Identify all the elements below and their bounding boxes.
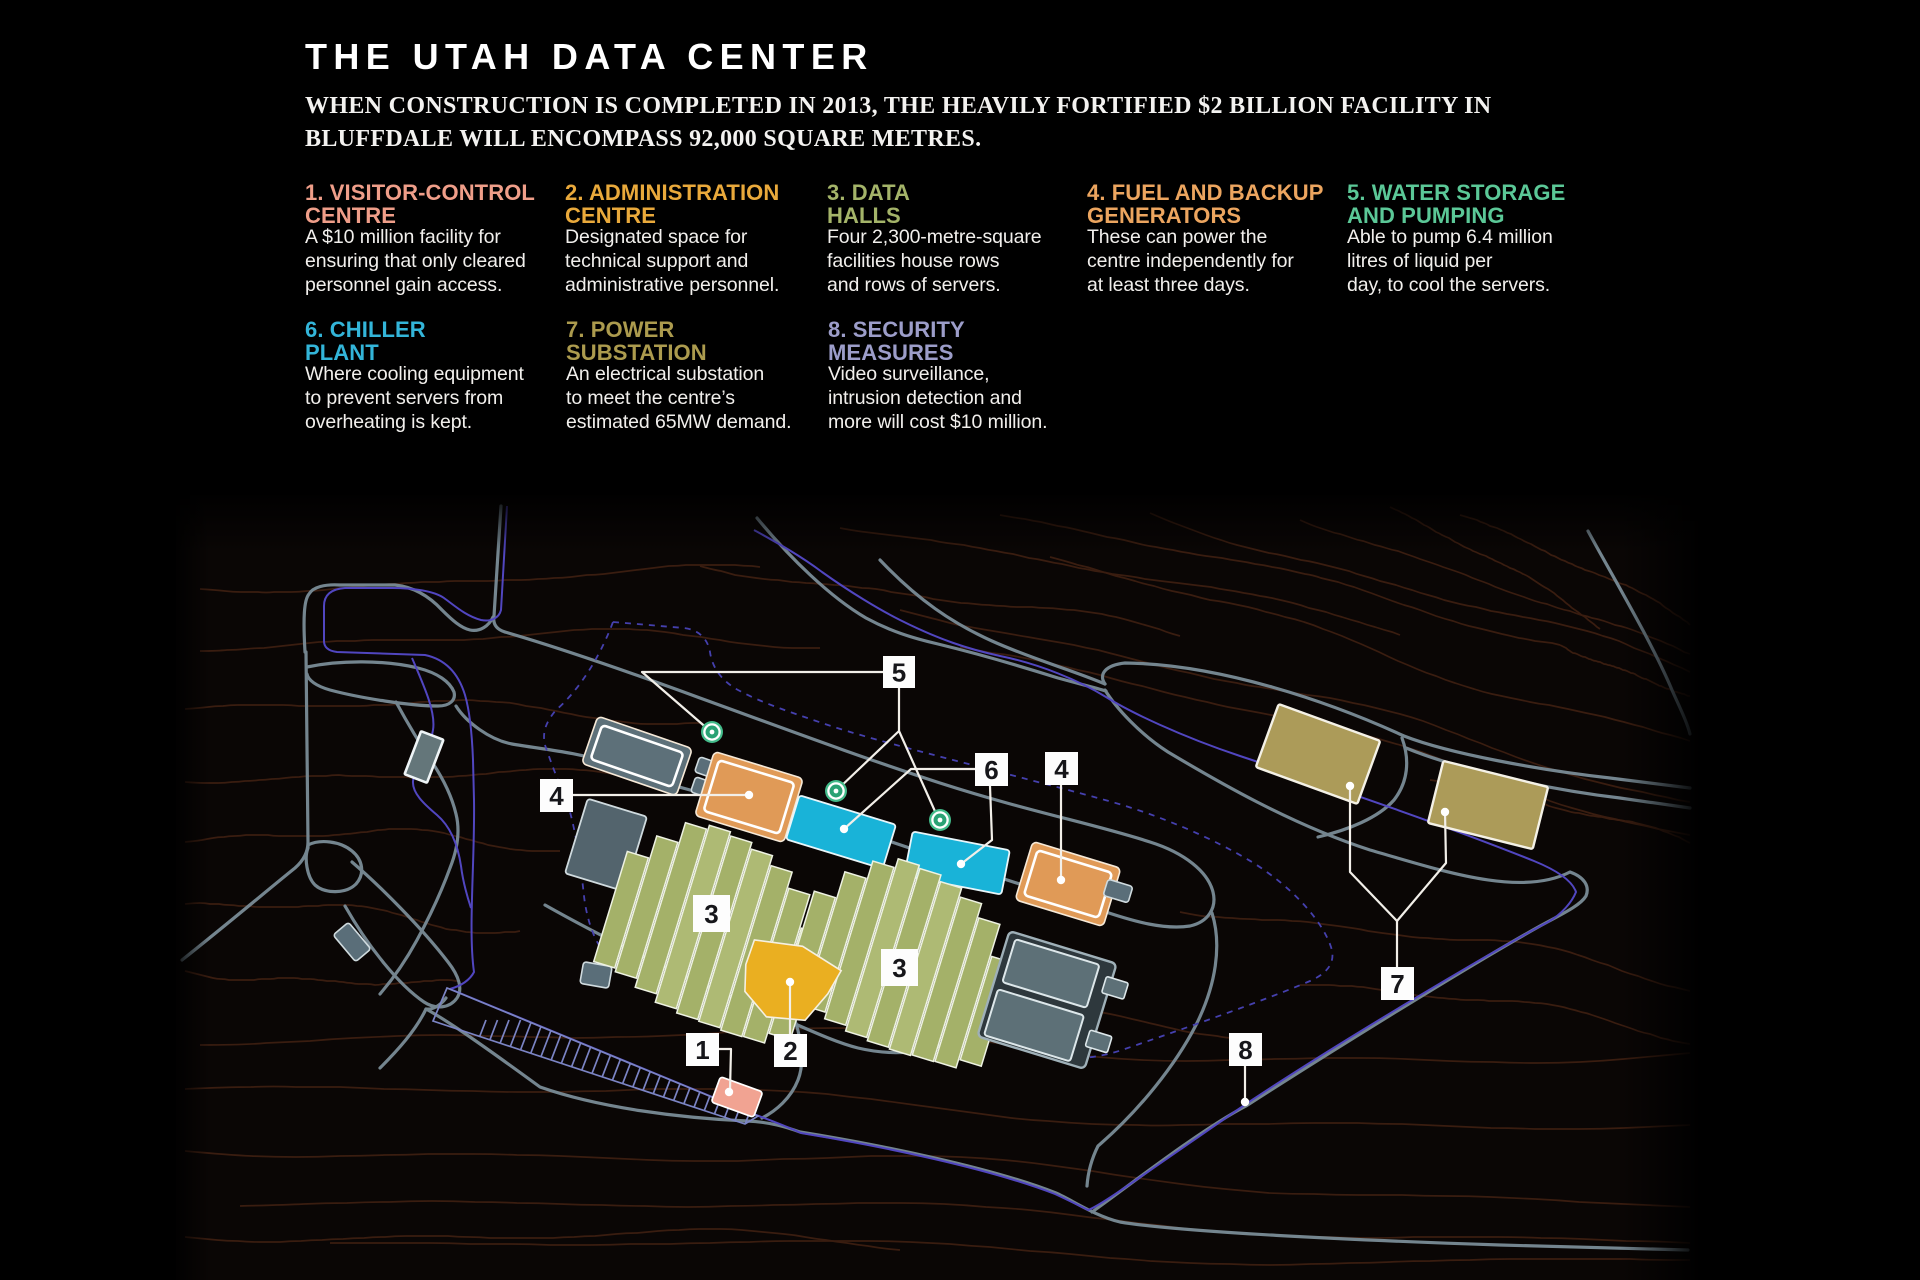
svg-text:5: 5 — [892, 658, 906, 688]
svg-text:6: 6 — [984, 755, 998, 785]
svg-text:4: 4 — [1054, 754, 1069, 784]
svg-text:8: 8 — [1238, 1035, 1252, 1065]
svg-text:3: 3 — [892, 953, 906, 983]
svg-text:1: 1 — [695, 1035, 709, 1065]
svg-text:2: 2 — [783, 1036, 797, 1066]
svg-text:4: 4 — [549, 781, 564, 811]
svg-text:7: 7 — [1390, 969, 1404, 999]
svg-text:3: 3 — [704, 899, 718, 929]
